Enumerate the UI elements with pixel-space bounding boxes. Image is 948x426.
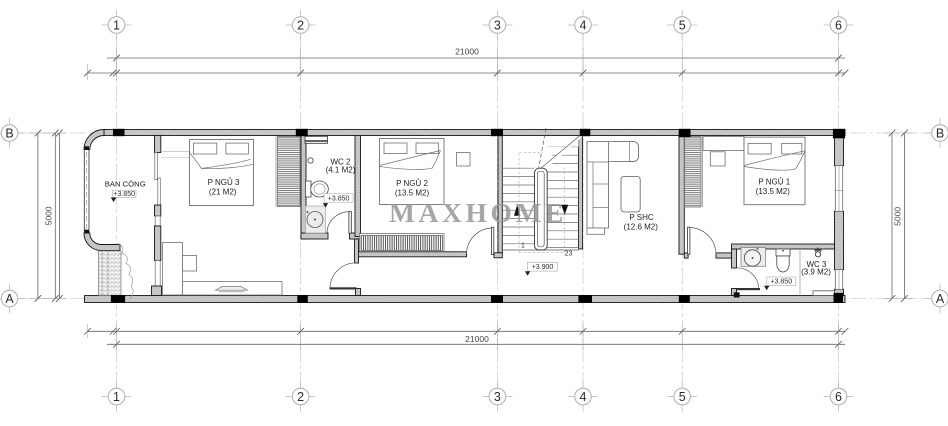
svg-text:3: 3 bbox=[494, 390, 501, 404]
svg-text:6: 6 bbox=[835, 18, 842, 32]
svg-text:MAXHOME: MAXHOME bbox=[389, 197, 567, 228]
svg-text:21000: 21000 bbox=[455, 47, 479, 57]
svg-text:A: A bbox=[5, 292, 14, 306]
svg-text:P NGỦ 2: P NGỦ 2 bbox=[396, 179, 428, 188]
svg-text:(21 M2): (21 M2) bbox=[209, 187, 237, 196]
svg-text:3: 3 bbox=[494, 18, 501, 32]
svg-text:5: 5 bbox=[679, 390, 686, 404]
svg-text:P NGỦ 1: P NGỦ 1 bbox=[758, 177, 790, 186]
svg-text:1: 1 bbox=[113, 390, 120, 404]
svg-text:4: 4 bbox=[580, 18, 587, 32]
svg-text:+3.850: +3.850 bbox=[113, 191, 135, 198]
svg-text:+3.850: +3.850 bbox=[770, 279, 792, 286]
svg-text:1: 1 bbox=[113, 18, 120, 32]
svg-text:P NGỦ 3: P NGỦ 3 bbox=[208, 178, 240, 187]
svg-text:(13.5 M2): (13.5 M2) bbox=[756, 187, 791, 196]
svg-text:B: B bbox=[936, 126, 944, 140]
svg-text:A: A bbox=[936, 292, 945, 306]
svg-text:5000: 5000 bbox=[893, 207, 903, 226]
svg-text:2: 2 bbox=[297, 18, 304, 32]
svg-text:2: 2 bbox=[297, 390, 304, 404]
svg-text:+3.850: +3.850 bbox=[328, 195, 350, 202]
svg-text:B: B bbox=[5, 126, 13, 140]
svg-text:+3.900: +3.900 bbox=[532, 264, 554, 271]
svg-text:23: 23 bbox=[565, 251, 573, 258]
svg-text:4: 4 bbox=[580, 390, 587, 404]
svg-text:(12.6 M2): (12.6 M2) bbox=[624, 223, 659, 232]
svg-text:(3.9 M2): (3.9 M2) bbox=[801, 267, 831, 276]
svg-text:6: 6 bbox=[835, 390, 842, 404]
svg-text:P SHC: P SHC bbox=[629, 213, 654, 222]
svg-text:1: 1 bbox=[521, 243, 525, 250]
svg-text:21000: 21000 bbox=[465, 334, 489, 344]
svg-text:5: 5 bbox=[679, 18, 686, 32]
svg-text:BAN CÔNG: BAN CÔNG bbox=[105, 179, 146, 188]
svg-text:5000: 5000 bbox=[44, 206, 54, 225]
svg-text:(4.1 M2): (4.1 M2) bbox=[326, 165, 356, 174]
